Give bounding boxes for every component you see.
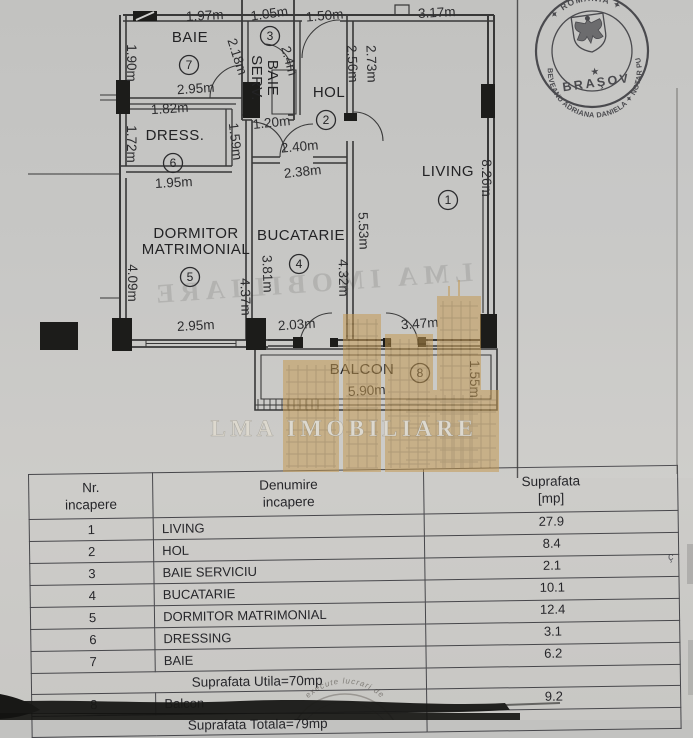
notary-stamp: ✦ ROMÂNIA ✦ HERBEVEANU ADRIANA DANIELA ✦…	[528, 0, 657, 127]
dim-label: 4.09m	[125, 264, 140, 302]
dim-label: 2.56m	[344, 45, 361, 83]
dim-label: 2.40m	[280, 137, 319, 155]
svg-text:3: 3	[267, 29, 274, 43]
dim-label: 2.38m	[283, 162, 322, 181]
room-label: BAIESERV.	[248, 55, 281, 101]
stamp-city-text: BRAŞOV	[562, 71, 632, 94]
svg-text:4: 4	[296, 257, 303, 271]
room-number: 7	[180, 56, 199, 75]
room-label: HOL	[313, 84, 345, 101]
room-label: LIVING	[422, 163, 474, 180]
svg-text:7: 7	[186, 58, 193, 72]
dim-label: 2.95m	[177, 317, 215, 334]
row-number-cell: 2	[29, 540, 153, 564]
walls	[28, 0, 497, 410]
brand-watermark-text: LMA IMOBILIARE	[211, 416, 478, 441]
room-label: BUCATARIE	[257, 227, 345, 244]
area-table: Nr.incapereDenumireincapereSuprafata[mp]…	[28, 465, 682, 738]
room-number: 1	[439, 191, 458, 210]
dim-label: 2.18m	[224, 36, 250, 76]
room-label: BALCON	[330, 361, 395, 378]
dim-label: 1.90m	[124, 44, 139, 82]
dim-label: 2.95m	[176, 80, 214, 98]
svg-text:1: 1	[445, 193, 452, 207]
bleedthrough-text: LMA IMOBILIARE	[149, 257, 474, 309]
area-table-body: 1LIVING27.92HOL8.43BAIE SERVICIU2.14BUCA…	[29, 510, 681, 737]
dim-label: 2.4m	[278, 44, 300, 77]
svg-text:2: 2	[323, 113, 330, 127]
stamp-star-icon: ★	[590, 66, 600, 78]
stamp-coat-of-arms	[571, 13, 608, 54]
dim-label: 1.50m	[305, 6, 344, 24]
dim-label: 4.32m	[336, 259, 352, 297]
svg-text:6: 6	[170, 156, 177, 170]
table-header-col2: Denumireincapere	[153, 469, 425, 518]
dim-label: 3.47m	[400, 315, 438, 333]
dim-label: 3.17m	[418, 4, 456, 21]
dim-label: 3.81m	[259, 255, 275, 293]
dim-label: 4.37m	[237, 278, 253, 316]
row-number-cell: 3	[30, 562, 154, 586]
stamp-country-text: ✦ ROMÂNIA ✦	[546, 0, 625, 21]
row-number-cell: 5	[30, 606, 154, 630]
dim-label: 1.59m	[226, 122, 245, 161]
total-row-label: Suprafata Totala=79mp	[32, 711, 428, 738]
row-number-cell: 8	[32, 693, 156, 717]
dim-label: 1.72m	[124, 125, 139, 163]
dim-label: 1.05m	[250, 4, 289, 24]
dimension-labels: 1.97m1.05m1.50m3.17m1.90m2.18m2.95m2.4m2…	[124, 4, 494, 399]
row-number-cell: 7	[31, 650, 155, 674]
stamp-ring-text: HERBEVEANU ADRIANA DANIELA ✦ NOTAR PUBLI…	[542, 37, 650, 126]
room-number: 4	[290, 255, 309, 274]
dim-label: 2.73m	[363, 45, 379, 83]
room-label: DORMITORMATRIMONIAL	[142, 225, 251, 258]
dim-label: 1.97m	[186, 7, 224, 24]
table-header-col1: Nr.incapere	[29, 473, 154, 520]
scanned-floorplan-page: { "colors": { "paper": "#c8c8c6", "ink":…	[0, 0, 693, 720]
room-number: 8	[411, 364, 430, 383]
room-labels: BAIE7BAIESERV.3HOL2LIVING1DRESS.6DORMITO…	[142, 27, 474, 383]
dim-label: 1.82m	[150, 100, 188, 118]
dim-label: 5.90m	[348, 382, 386, 399]
eagle-icon	[574, 17, 604, 45]
hatch-mark	[136, 12, 154, 20]
svg-text:✦ ROMÂNIA ✦: ✦ ROMÂNIA ✦	[546, 0, 625, 21]
dim-label: 8.26m	[479, 159, 494, 197]
dim-label: 2.03m	[277, 316, 315, 334]
dim-label: 1.20m	[252, 113, 291, 132]
table-header-col3: Suprafata[mp]	[424, 465, 678, 514]
room-label: BAIE	[172, 29, 208, 46]
page-margin	[518, 0, 693, 478]
svg-text:HERBEVEANU ADRIANA DANIELA ✦ N: HERBEVEANU ADRIANA DANIELA ✦ NOTAR PUBLI…	[542, 37, 650, 126]
dim-label: 1.55m	[467, 360, 482, 398]
wall-fills	[40, 11, 497, 351]
room-number: 3	[261, 27, 280, 46]
row-number-cell: 6	[31, 628, 155, 652]
room-number: 6	[164, 154, 183, 173]
dim-label: 5.53m	[355, 212, 371, 250]
gold-buildings-watermark	[283, 280, 499, 472]
room-number: 2	[317, 111, 336, 130]
row-number-cell: 1	[29, 518, 153, 542]
room-number: 5	[181, 268, 200, 287]
row-number-cell: 4	[30, 584, 154, 608]
dim-label: 1.95m	[155, 174, 193, 191]
svg-text:5: 5	[187, 270, 194, 284]
area-table-wrap: Nr.incapereDenumireincapereSuprafata[mp]…	[28, 465, 682, 738]
svg-text:8: 8	[417, 366, 424, 380]
room-label: DRESS.	[146, 127, 205, 144]
door-arcs	[210, 20, 418, 345]
